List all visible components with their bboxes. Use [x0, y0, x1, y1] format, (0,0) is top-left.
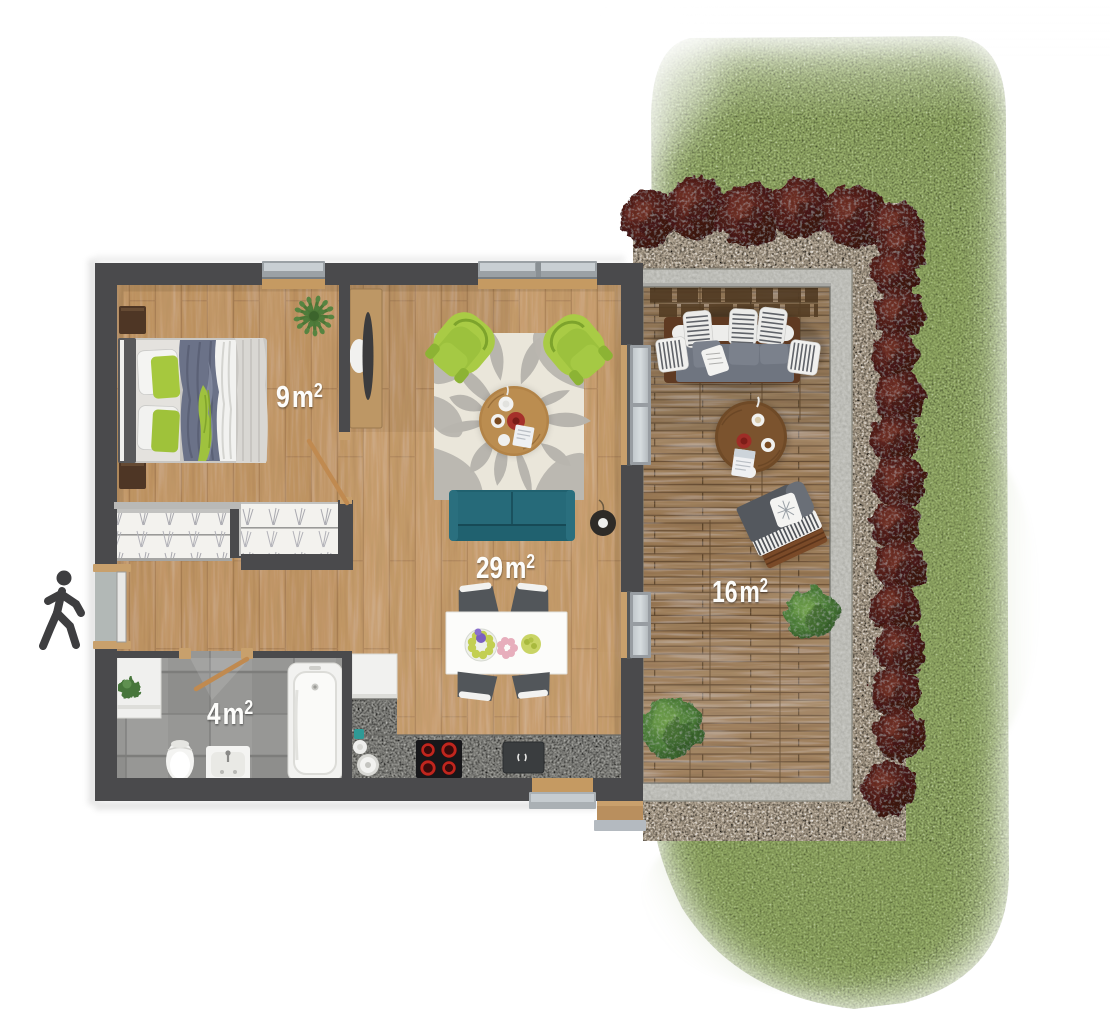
svg-text:29 m2: 29 m2	[476, 550, 535, 585]
svg-text:16 m2: 16 m2	[712, 574, 768, 609]
